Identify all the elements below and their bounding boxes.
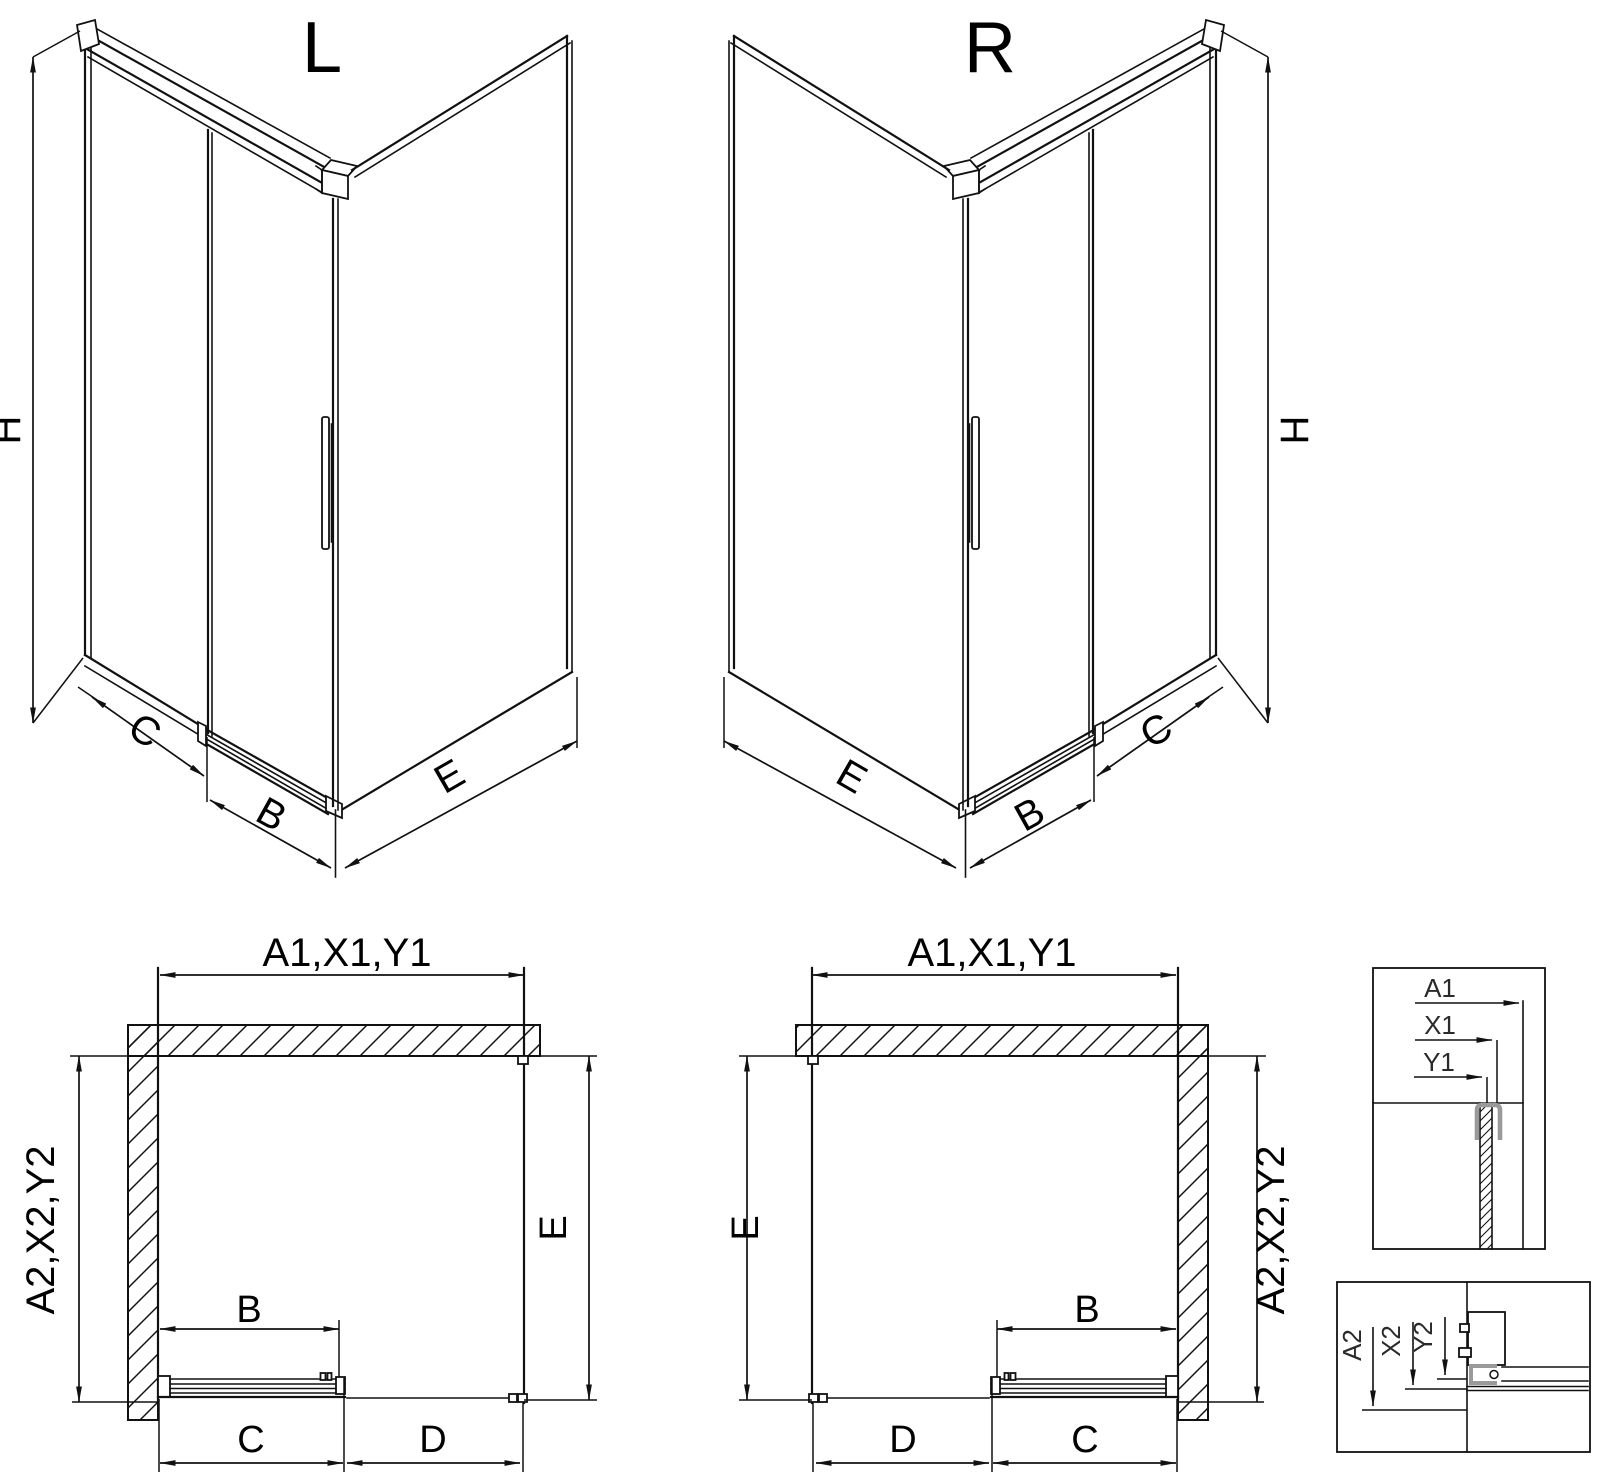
plan-view-right: A1,X1,Y1 A2,X2,Y2 E B D C: [725, 931, 1293, 1472]
drawing-sheet: L H C B E R H C B E A1,X1,Y1 A2,X2,Y2 E …: [0, 0, 1600, 1474]
dim-label-door-left: B: [249, 789, 294, 840]
wall-hatch-side-right-plan: [1178, 1025, 1208, 1420]
detail-width-offsets: A1 X1 Y1: [1373, 968, 1545, 1249]
dim-label-bottom-first: C: [237, 1419, 264, 1461]
detail-label-x2: X2: [1376, 1325, 1406, 1357]
dim-label-side-panel-right: E: [829, 751, 874, 802]
wall-hatch-side-left-plan: [128, 1025, 158, 1420]
roller-wheel: [1490, 1371, 1498, 1379]
variant-letter-right: R: [964, 8, 1016, 88]
dim-label-door-right: B: [1007, 789, 1052, 840]
door-glass-section: [1468, 1312, 1505, 1365]
dim-label-width-top: A1,X1,Y1: [262, 931, 431, 975]
iso-view-right: R H C B E: [724, 8, 1316, 877]
dim-label-bottom-second: D: [419, 1419, 446, 1461]
detail-depth-offsets: A2 X2 Y2: [1337, 1282, 1590, 1452]
dim-label-door: B: [236, 1289, 261, 1331]
detail-label-a2: A2: [1337, 1329, 1367, 1361]
dim-label-height-left: H: [0, 416, 29, 445]
dim-label-height-right: H: [1272, 416, 1316, 445]
technical-drawing: L H C B E R H C B E A1,X1,Y1 A2,X2,Y2 E …: [0, 0, 1600, 1474]
dim-label-depth-side: A2,X2,Y2: [1249, 1145, 1293, 1314]
detail-label-a1: A1: [1424, 973, 1456, 1003]
dim-label-side: E: [533, 1215, 575, 1240]
dim-label-side-panel-left: E: [427, 751, 472, 802]
dim-label-depth-side: A2,X2,Y2: [19, 1145, 63, 1314]
glass-panel-section: [1480, 1103, 1492, 1249]
dim-label-door: B: [1074, 1289, 1099, 1331]
variant-letter-left: L: [302, 8, 342, 88]
detail-label-x1: X1: [1424, 1010, 1456, 1040]
wall-hatch-top-right-plan: [796, 1025, 1208, 1056]
dim-label-bottom-first: D: [889, 1419, 916, 1461]
dim-label-width-top: A1,X1,Y1: [907, 931, 1076, 975]
dim-label-side: E: [725, 1215, 767, 1240]
dim-label-bottom-second: C: [1071, 1419, 1098, 1461]
iso-view-left: L H C B E: [0, 8, 577, 877]
wall-hatch-top-left-plan: [128, 1025, 540, 1056]
plan-view-left: A1,X1,Y1 A2,X2,Y2 E B C D: [19, 931, 597, 1472]
detail-label-y1: Y1: [1423, 1047, 1455, 1077]
detail-label-y2: Y2: [1408, 1321, 1438, 1353]
